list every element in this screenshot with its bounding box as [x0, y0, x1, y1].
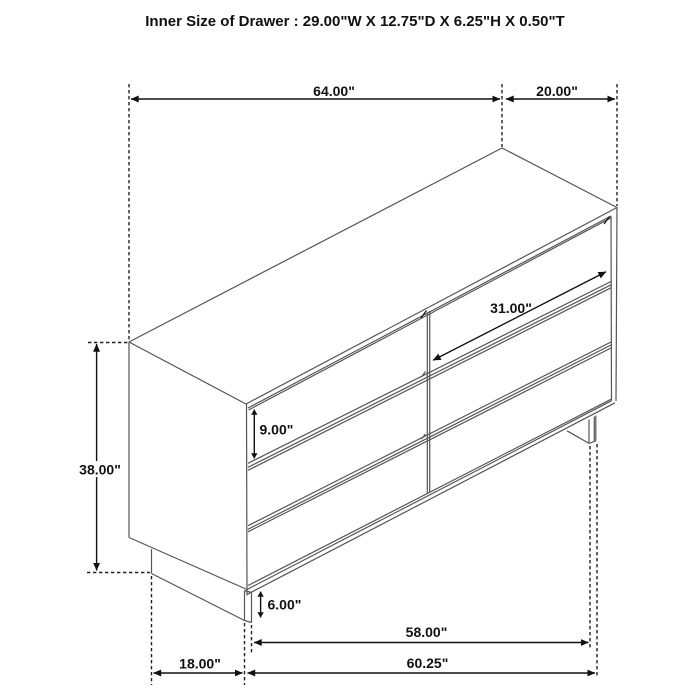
svg-text:38.00": 38.00" — [79, 462, 121, 478]
svg-text:18.00": 18.00" — [179, 656, 221, 672]
svg-text:64.00": 64.00" — [313, 83, 355, 99]
svg-text:60.25": 60.25" — [407, 655, 449, 671]
svg-text:20.00": 20.00" — [536, 83, 578, 99]
svg-text:6.00": 6.00" — [268, 597, 302, 613]
svg-text:31.00": 31.00" — [490, 300, 532, 316]
svg-text:9.00": 9.00" — [260, 422, 294, 438]
svg-text:Inner Size of Drawer : 29.00"W: Inner Size of Drawer : 29.00"W X 12.75"D… — [145, 13, 564, 30]
svg-text:58.00": 58.00" — [406, 624, 448, 640]
